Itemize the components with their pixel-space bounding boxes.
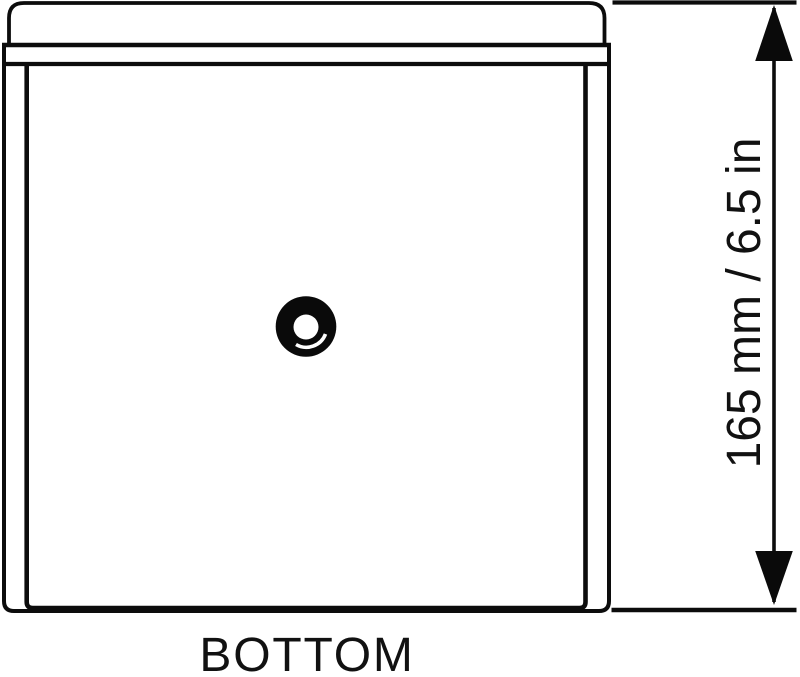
svg-text:BOTTOM: BOTTOM	[199, 629, 414, 677]
svg-text:165 mm / 6.5 in: 165 mm / 6.5 in	[718, 138, 771, 469]
